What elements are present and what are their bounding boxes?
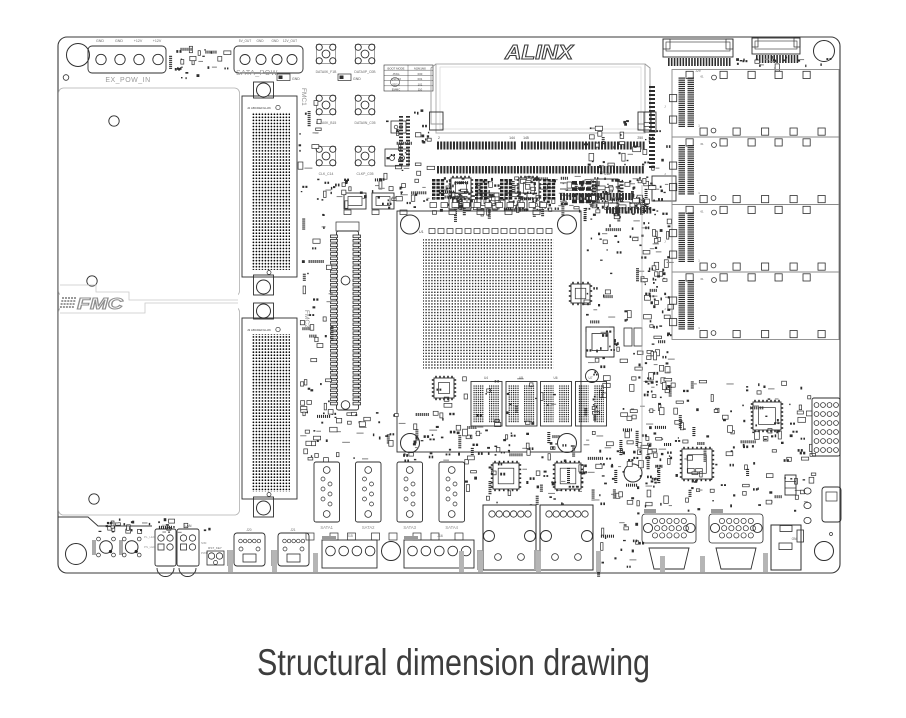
svg-text:61: 61 [700, 142, 704, 146]
svg-text:GND: GND [96, 39, 104, 43]
svg-text:SATA3: SATA3 [403, 525, 416, 530]
svg-text:LAN: LAN [185, 524, 192, 528]
svg-text:000: 000 [418, 72, 423, 76]
svg-text:FMC: FMC [77, 296, 124, 313]
svg-text:5V_OUT: 5V_OUT [239, 39, 251, 43]
svg-text:SATA1: SATA1 [320, 525, 333, 530]
svg-text:U1: U1 [419, 230, 424, 234]
svg-text:U5: U5 [519, 376, 523, 380]
svg-text:+12V: +12V [134, 39, 143, 43]
svg-text:FMC2: FMC2 [303, 310, 310, 328]
svg-text:J15: J15 [347, 534, 353, 538]
svg-text:61: 61 [700, 75, 704, 79]
svg-text:BOOT MODE: BOOT MODE [387, 67, 404, 71]
svg-text:61: 61 [700, 277, 704, 281]
svg-text:J16: J16 [437, 534, 443, 538]
svg-text:U7: U7 [588, 376, 592, 380]
svg-text:101: 101 [418, 82, 423, 86]
svg-text:144: 144 [509, 136, 515, 140]
svg-text:GND: GND [292, 77, 300, 81]
svg-text:GND: GND [353, 77, 361, 81]
svg-text:SIM: SIM [201, 541, 207, 545]
svg-text:GND: GND [115, 39, 123, 43]
svg-text:GND: GND [256, 39, 264, 43]
svg-text:2: 2 [438, 136, 440, 140]
svg-text:J21: J21 [290, 528, 295, 532]
svg-text:JTAG: JTAG [393, 72, 400, 76]
svg-text:J20: J20 [246, 528, 251, 532]
svg-text:DATA0N_C05: DATA0N_C05 [355, 121, 376, 125]
svg-text:ALINX: ALINX [504, 42, 575, 64]
svg-text:Structural dimension drawing: Structural dimension drawing [257, 642, 650, 683]
svg-text:CLK_C14: CLK_C14 [319, 172, 334, 176]
svg-text:CLKP_C05: CLKP_C05 [357, 172, 374, 176]
svg-text:PS_LED: PS_LED [144, 545, 156, 549]
svg-text:PL_LED: PL_LED [144, 535, 156, 539]
svg-text:110: 110 [418, 88, 423, 92]
svg-text:SATA2: SATA2 [362, 525, 375, 530]
svg-text:U6: U6 [553, 376, 557, 380]
svg-text:DATA0K_F1B: DATA0K_F1B [316, 70, 338, 74]
svg-text:145: 145 [523, 136, 529, 140]
svg-text:001: 001 [418, 77, 423, 81]
svg-text:ON: ON [792, 537, 797, 541]
svg-text:FMC1: FMC1 [300, 88, 307, 106]
svg-text:GND: GND [271, 39, 279, 43]
svg-text:+12V: +12V [153, 39, 162, 43]
svg-text:12V_OUT: 12V_OUT [283, 39, 297, 43]
svg-text:J3 ABCDEFGHJK: J3 ABCDEFGHJK [247, 328, 271, 332]
svg-text:61: 61 [700, 210, 704, 214]
svg-text:EX_POW_IN: EX_POW_IN [105, 77, 150, 84]
svg-text:USB: USB [162, 524, 170, 528]
svg-text:PWR: PWR [201, 551, 209, 555]
svg-text:250: 250 [637, 136, 643, 140]
svg-text:DATA0P_C0B: DATA0P_C0B [354, 70, 376, 74]
svg-text:M2M1M0: M2M1M0 [414, 67, 426, 71]
svg-text:U4: U4 [484, 376, 488, 380]
svg-text:SATA4: SATA4 [445, 525, 458, 530]
svg-text:RST_KEY: RST_KEY [208, 546, 222, 550]
svg-text:J2 ABCDEFGHJK: J2 ABCDEFGHJK [247, 106, 271, 110]
svg-text:EMMC: EMMC [392, 88, 401, 92]
svg-text:SATA_POW: SATA_POW [236, 70, 278, 77]
